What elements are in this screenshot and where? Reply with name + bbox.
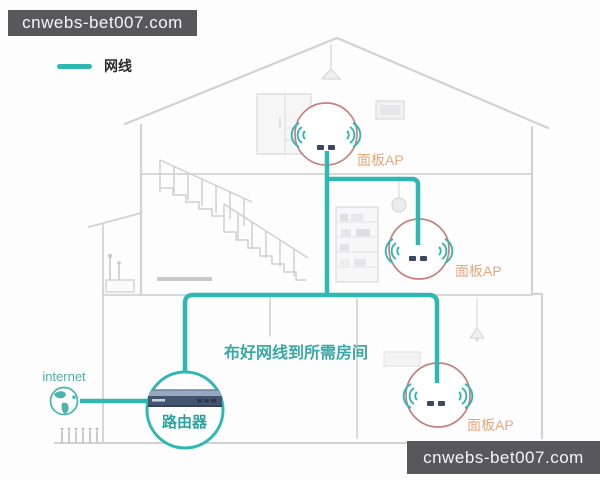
cable-legend-swatch (57, 64, 92, 69)
router-label: 路由器 (162, 411, 207, 432)
cabling-annotation: 布好网线到所需房间 (224, 339, 368, 363)
watermark-banner-bottom: cnwebs-bet007.com (407, 441, 600, 474)
watermark-text: cnwebs-bet007.com (423, 448, 584, 468)
ap-label-attic: 面板AP (357, 150, 404, 170)
staircase (160, 160, 308, 280)
cable-legend-label: 网线 (104, 56, 132, 76)
annex-vases (106, 254, 134, 292)
globe-icon (51, 388, 78, 415)
garden-fence (61, 428, 99, 443)
low-shelf (157, 277, 212, 281)
ap-label-middle: 面板AP (455, 261, 502, 281)
ground-pendant-lamp (470, 298, 484, 342)
ground-cabinet (384, 352, 420, 366)
ap-label-ground: 面板AP (467, 415, 514, 435)
watermark-text: cnwebs-bet007.com (22, 13, 183, 33)
router-circle (147, 372, 223, 448)
bookshelf (336, 207, 378, 282)
legend: 网线 (57, 56, 132, 76)
router-device (148, 390, 222, 407)
internet-label: internet (36, 369, 92, 384)
attic-picture-frame (376, 101, 404, 119)
watermark-banner-top: cnwebs-bet007.com (8, 10, 197, 36)
attic-pendant-lamp (322, 44, 340, 79)
network-diagram: cnwebs-bet007.com cnwebs-bet007.com 网线 面… (0, 0, 600, 480)
hanging-ball-lamp (392, 176, 406, 212)
